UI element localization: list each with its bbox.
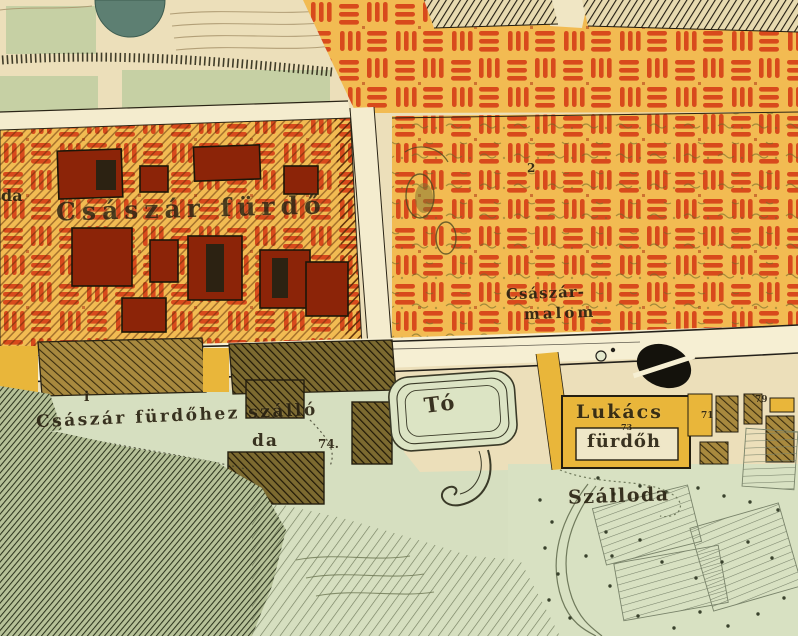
map-canvas[interactable]: da Császár fürdő 2 Császár- malom Császá…	[0, 0, 798, 636]
roadside-buildings-left	[0, 338, 396, 396]
label-parcel-71: 71	[701, 412, 714, 421]
label-lukacs-line2: fürdőh	[587, 433, 661, 451]
label-parcel-2: 2	[527, 162, 535, 174]
csaszar-furdo-block	[0, 109, 362, 352]
label-csaszar-furdo: Császár fürdő	[56, 192, 327, 224]
spring-dot	[611, 348, 615, 352]
label-partial-da: da	[1, 188, 23, 204]
label-csaszar-malom-2: malom	[524, 305, 597, 323]
label-pond-to: Tó	[423, 391, 459, 416]
label-parcel-74: 74.	[318, 438, 339, 450]
map-artwork	[0, 0, 798, 636]
label-csaszar-malom-1: Császár-	[506, 285, 585, 303]
label-szalloda: Szálloda	[568, 485, 670, 508]
label-lukacs-line1: Lukács	[576, 403, 663, 422]
spring-circle	[596, 351, 606, 361]
label-info-marker: i	[84, 390, 89, 404]
label-hotel-line2: da	[252, 433, 279, 450]
label-parcel-73: 73	[621, 423, 632, 431]
label-parcel-79: 79	[755, 396, 768, 405]
